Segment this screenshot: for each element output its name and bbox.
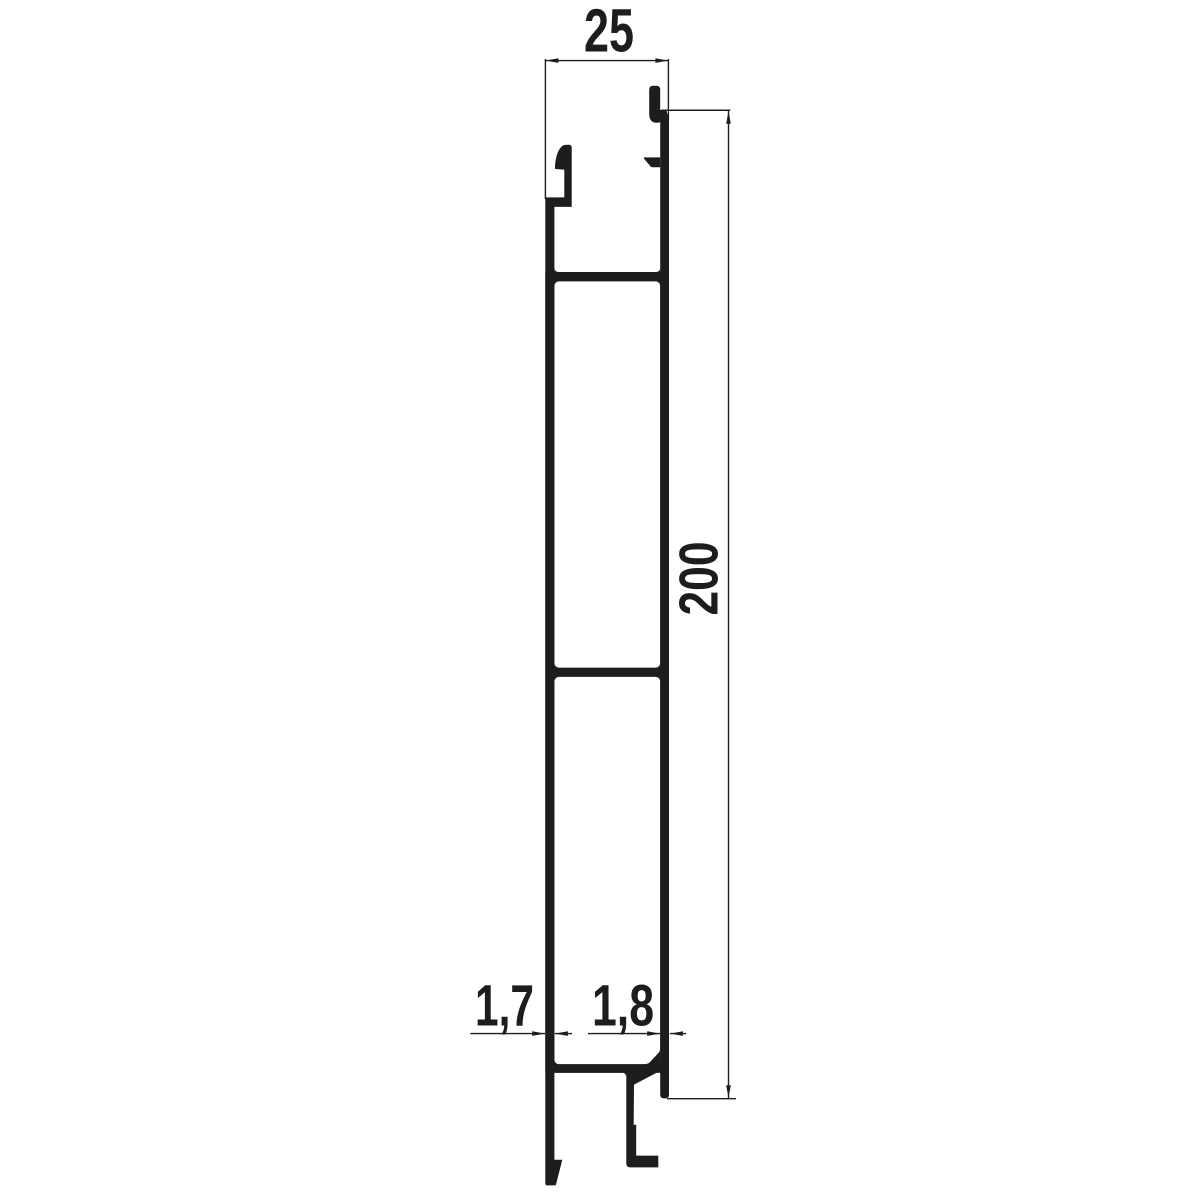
svg-text:1,7: 1,7 [475,973,534,1038]
svg-text:200: 200 [669,542,730,616]
svg-text:1,8: 1,8 [592,973,654,1038]
svg-text:25: 25 [584,0,634,65]
